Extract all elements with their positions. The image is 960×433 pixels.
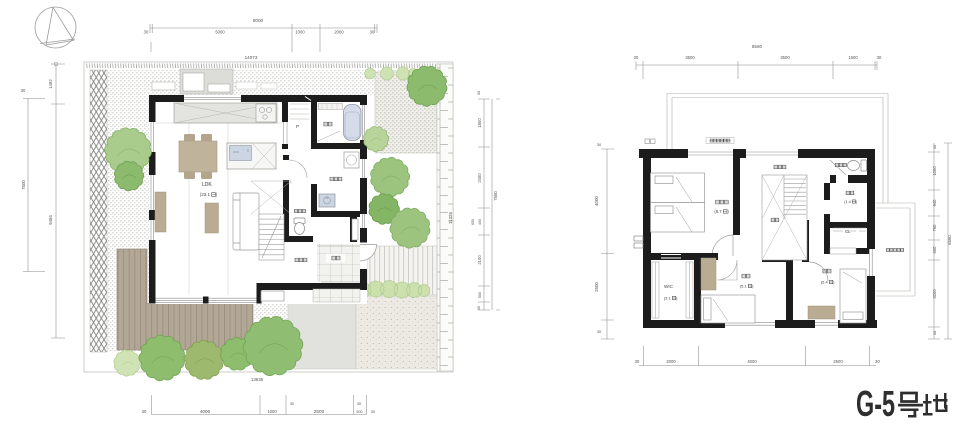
svg-text:650: 650 [471, 219, 475, 225]
svg-text:30: 30 [597, 329, 602, 334]
svg-text:30: 30 [476, 90, 481, 95]
svg-text:400: 400 [478, 219, 482, 225]
svg-text:7500: 7500 [21, 180, 26, 190]
svg-text:30: 30 [932, 330, 937, 335]
svg-text:3500: 3500 [685, 55, 695, 60]
svg-text:30: 30 [477, 306, 481, 310]
svg-text:2500: 2500 [314, 409, 325, 414]
svg-text:30: 30 [357, 402, 361, 406]
svg-text:30: 30 [875, 359, 880, 364]
svg-text:30: 30 [877, 55, 882, 60]
svg-text:30: 30 [144, 30, 149, 35]
svg-text:3500: 3500 [780, 55, 790, 60]
svg-text:30: 30 [371, 410, 375, 414]
svg-text:P: P [296, 124, 299, 129]
svg-text:2000: 2000 [666, 359, 676, 364]
svg-text:2100: 2100 [477, 255, 482, 265]
svg-text:760: 760 [932, 224, 937, 232]
svg-text:WIC: WIC [664, 284, 674, 289]
svg-text:(23.1: (23.1 [200, 192, 211, 197]
svg-text:30: 30 [370, 30, 375, 35]
svg-text:LDK: LDK [202, 182, 212, 188]
svg-text:11325: 11325 [448, 212, 453, 224]
svg-text:7560: 7560 [493, 191, 498, 201]
svg-text:4000: 4000 [747, 359, 757, 364]
svg-text:1000: 1000 [932, 166, 937, 176]
svg-text:2000: 2000 [334, 30, 344, 35]
svg-text:500: 500 [356, 410, 362, 414]
svg-text:600: 600 [932, 246, 937, 254]
svg-text:4000: 4000 [200, 409, 211, 414]
svg-text:30: 30 [634, 55, 639, 60]
svg-text:(5.1: (5.1 [740, 283, 748, 288]
svg-text:30: 30 [290, 402, 294, 406]
svg-text:30: 30 [21, 88, 26, 93]
svg-text:500: 500 [478, 292, 482, 298]
svg-text:14073: 14073 [245, 55, 258, 60]
svg-text:6560: 6560 [947, 235, 952, 245]
svg-text:G-5: G-5 [856, 383, 895, 424]
svg-text:13635: 13635 [251, 377, 264, 382]
svg-text:CL: CL [845, 229, 851, 234]
svg-text:30: 30 [597, 142, 602, 147]
svg-text:30: 30 [142, 409, 147, 414]
svg-text:1000: 1000 [295, 30, 305, 35]
svg-text:8560: 8560 [752, 44, 763, 49]
svg-text:(1.4: (1.4 [844, 200, 851, 204]
svg-text:(5.4: (5.4 [821, 279, 829, 284]
svg-text:1800: 1800 [477, 118, 482, 128]
svg-text:940: 940 [932, 199, 937, 207]
svg-text:2500: 2500 [594, 282, 599, 292]
svg-text:2500: 2500 [833, 359, 843, 364]
svg-text:8000: 8000 [253, 18, 264, 23]
svg-text:4000: 4000 [594, 196, 599, 206]
svg-text:5000: 5000 [215, 30, 225, 35]
svg-text:1500: 1500 [848, 55, 858, 60]
svg-text:30: 30 [932, 144, 937, 149]
svg-text:2450: 2450 [477, 173, 482, 183]
svg-text:9454: 9454 [48, 215, 53, 225]
svg-text:30: 30 [635, 359, 640, 364]
svg-text:(8.7: (8.7 [714, 209, 722, 214]
svg-text:(3.1: (3.1 [664, 295, 672, 300]
svg-text:1000: 1000 [267, 409, 277, 414]
svg-text:1482: 1482 [48, 79, 53, 89]
svg-text:3200: 3200 [932, 289, 937, 299]
